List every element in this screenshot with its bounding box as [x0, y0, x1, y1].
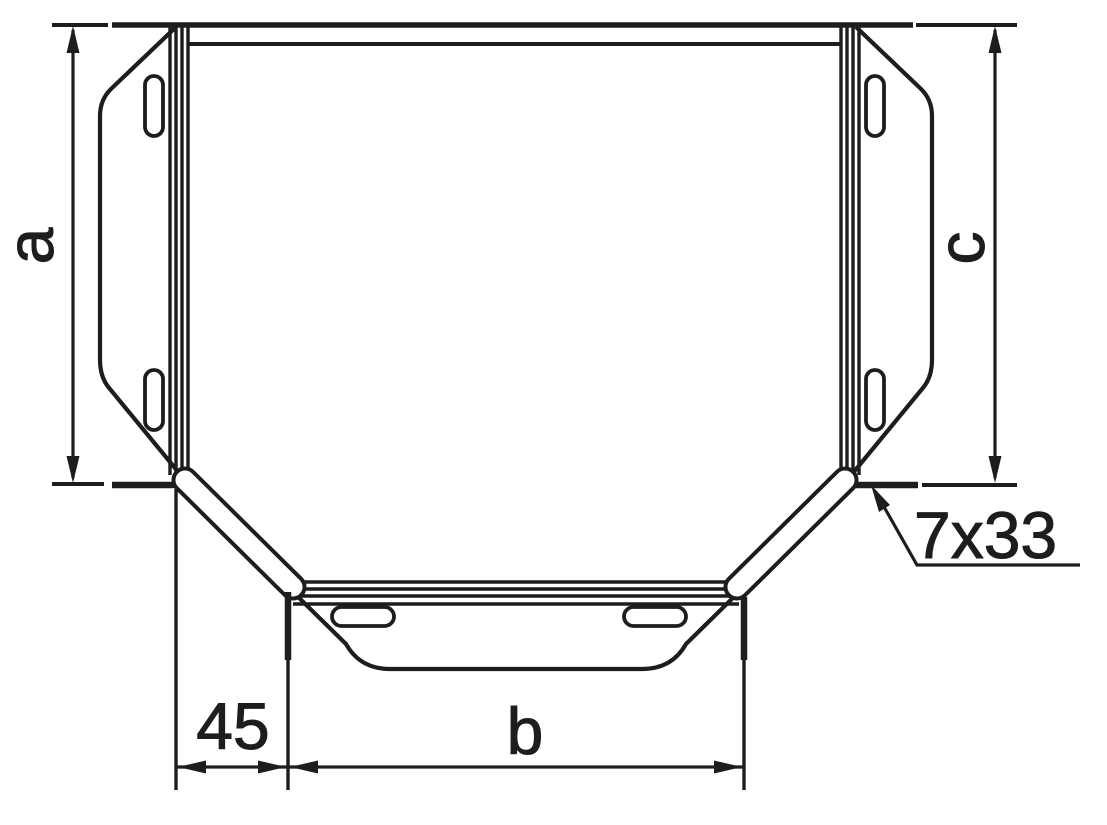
left-flange: [170, 27, 188, 475]
bottom-tab-profile: [290, 589, 742, 669]
corner-connector-left: [169, 464, 310, 603]
slot-right-top: [866, 76, 884, 136]
dim-c-label: c: [924, 232, 998, 265]
right-flange: [841, 27, 859, 475]
slot-left-top: [145, 76, 163, 136]
slot-bottom-right: [624, 607, 686, 626]
slot-callout: 7x33: [871, 485, 1080, 572]
dim-a-arrow-up-icon: [67, 26, 80, 53]
dimension-a: a: [0, 25, 108, 484]
technical-drawing-page: a c 45 b 7x33: [0, 0, 1107, 825]
slot-bottom-left: [332, 607, 394, 626]
dim-a-arrow-down-icon: [67, 456, 80, 483]
slot-callout-label: 7x33: [914, 498, 1057, 572]
slot-right-bottom: [866, 370, 884, 430]
dim-45-label: 45: [196, 689, 269, 763]
part-outline: [100, 25, 932, 669]
dim-b-label: b: [507, 694, 544, 768]
tee-fitting-drawing: a c 45 b 7x33: [0, 0, 1107, 825]
dimension-c: c: [916, 25, 1017, 485]
bottom-flange: [293, 582, 739, 604]
slot-callout-arrow-icon: [871, 485, 890, 512]
dim-a-label: a: [0, 227, 67, 264]
corner-connector-right: [721, 464, 862, 603]
dim-b-arrow-right-icon: [714, 761, 742, 774]
dim-c-arrow-down-icon: [989, 456, 1002, 483]
dim-b-arrow-left-icon: [290, 761, 318, 774]
slot-left-bottom: [145, 370, 163, 430]
dim-c-arrow-up-icon: [989, 26, 1002, 53]
